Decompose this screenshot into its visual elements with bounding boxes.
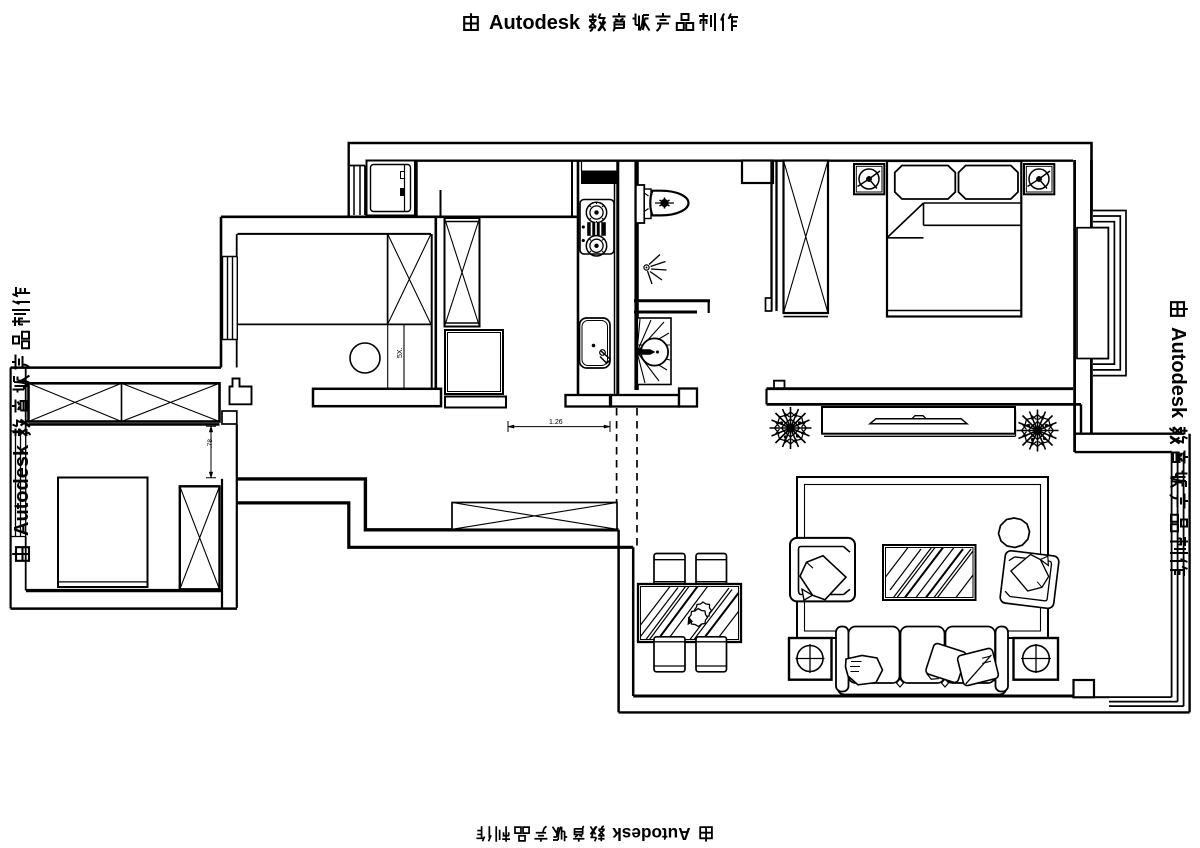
svg-text:.78.: .78. — [207, 437, 214, 448]
svg-text:5X.: 5X. — [397, 347, 404, 358]
svg-text:1.26: 1.26 — [549, 419, 563, 426]
